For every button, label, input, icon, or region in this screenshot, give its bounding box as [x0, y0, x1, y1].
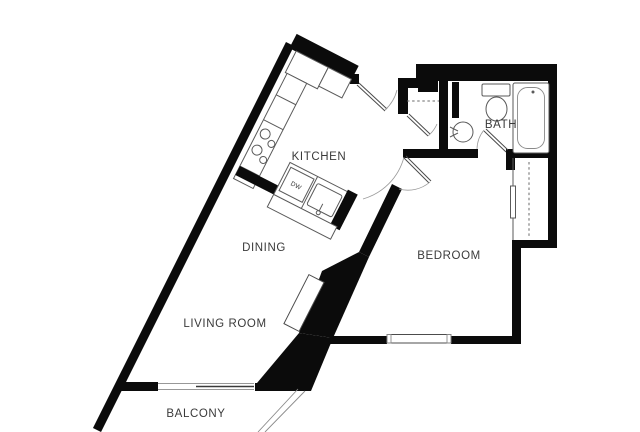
- kitchen-fixtures: DW: [227, 51, 403, 241]
- diagonal-wall-lower: [257, 333, 333, 391]
- bedroom-door-icon: [399, 156, 431, 190]
- entry-stub-wall: [398, 78, 408, 114]
- living-room-window-icon: [158, 384, 254, 390]
- bedroom-right-wall: [512, 248, 521, 344]
- room-label-dining: DINING: [242, 242, 286, 254]
- closet-side-stub: [506, 158, 515, 170]
- closet-door-icon: [407, 114, 437, 136]
- toilet-tank: [482, 84, 510, 96]
- room-label-kitchen: KITCHEN: [292, 151, 347, 163]
- bath-plumbing-nub: [452, 82, 459, 118]
- room-label-balcony: BALCONY: [166, 408, 225, 420]
- bath-door-icon: [477, 129, 508, 152]
- hall-south-wall: [403, 149, 478, 158]
- tub-faucet-dot: [532, 91, 535, 94]
- room-label-bath: BATH: [485, 119, 517, 131]
- bedroom-south-wall-right: [451, 336, 521, 344]
- entry-door-icon: [357, 83, 397, 111]
- bedroom-south-wall-left: [330, 336, 387, 344]
- closet-column: [418, 81, 438, 92]
- bathroom-sink-icon: [453, 122, 473, 142]
- left-exterior-wall: [97, 44, 290, 430]
- top-exterior-wall: [416, 64, 557, 81]
- sliding-door-panel: [511, 186, 516, 218]
- toilet-icon: [486, 97, 507, 121]
- floor-plan-canvas: DW: [0, 0, 640, 432]
- balcony-railing-icon: [258, 389, 305, 432]
- floor-plan-drawing: DW: [0, 0, 640, 432]
- bath-left-wall: [439, 64, 448, 150]
- closet-bottom-wall: [512, 240, 557, 248]
- room-label-bedroom: BEDROOM: [417, 250, 481, 262]
- bedroom-window-icon: [387, 335, 451, 344]
- bedroom-diagonal-wall: [359, 184, 402, 257]
- room-label-living: LIVING ROOM: [183, 318, 266, 330]
- living-south-wall: [117, 382, 158, 391]
- doors: [357, 83, 508, 199]
